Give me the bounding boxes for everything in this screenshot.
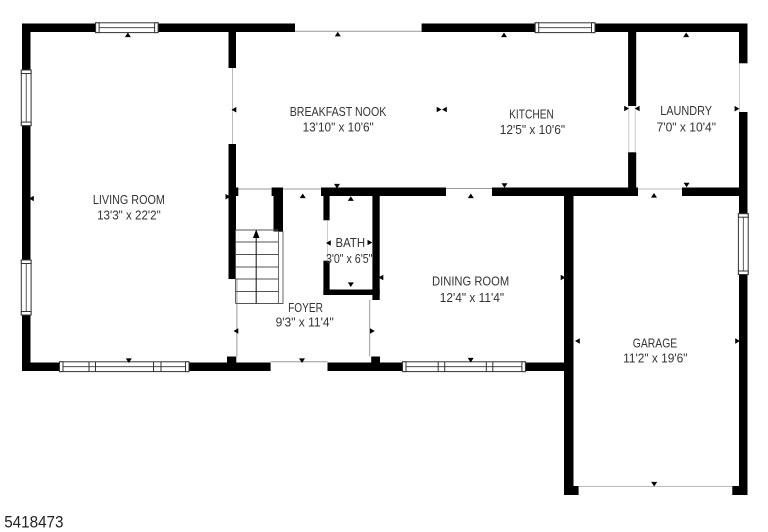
- svg-text:13'3" x 22'2": 13'3" x 22'2": [97, 209, 161, 223]
- svg-text:GARAGE: GARAGE: [633, 336, 678, 350]
- svg-text:12'5" x 10'6": 12'5" x 10'6": [500, 123, 565, 137]
- svg-text:13'10" x 10'6": 13'10" x 10'6": [303, 121, 374, 135]
- svg-text:9'3" x 11'4": 9'3" x 11'4": [276, 316, 334, 330]
- svg-text:7'0" x 10'4": 7'0" x 10'4": [657, 121, 716, 135]
- svg-text:BATH: BATH: [336, 236, 366, 250]
- svg-text:5418473: 5418473: [4, 512, 63, 531]
- svg-text:LAUNDRY: LAUNDRY: [660, 104, 712, 118]
- svg-text:BREAKFAST NOOK: BREAKFAST NOOK: [290, 105, 387, 119]
- svg-text:11'2" x 19'6": 11'2" x 19'6": [623, 352, 687, 366]
- svg-text:LIVING ROOM: LIVING ROOM: [93, 193, 165, 207]
- svg-text:3'0" x 6'5": 3'0" x 6'5": [326, 252, 373, 266]
- svg-text:KITCHEN: KITCHEN: [509, 108, 554, 122]
- svg-text:FOYER: FOYER: [288, 301, 323, 315]
- svg-text:12'4" x 11'4": 12'4" x 11'4": [440, 291, 504, 305]
- svg-text:DINING ROOM: DINING ROOM: [432, 275, 509, 289]
